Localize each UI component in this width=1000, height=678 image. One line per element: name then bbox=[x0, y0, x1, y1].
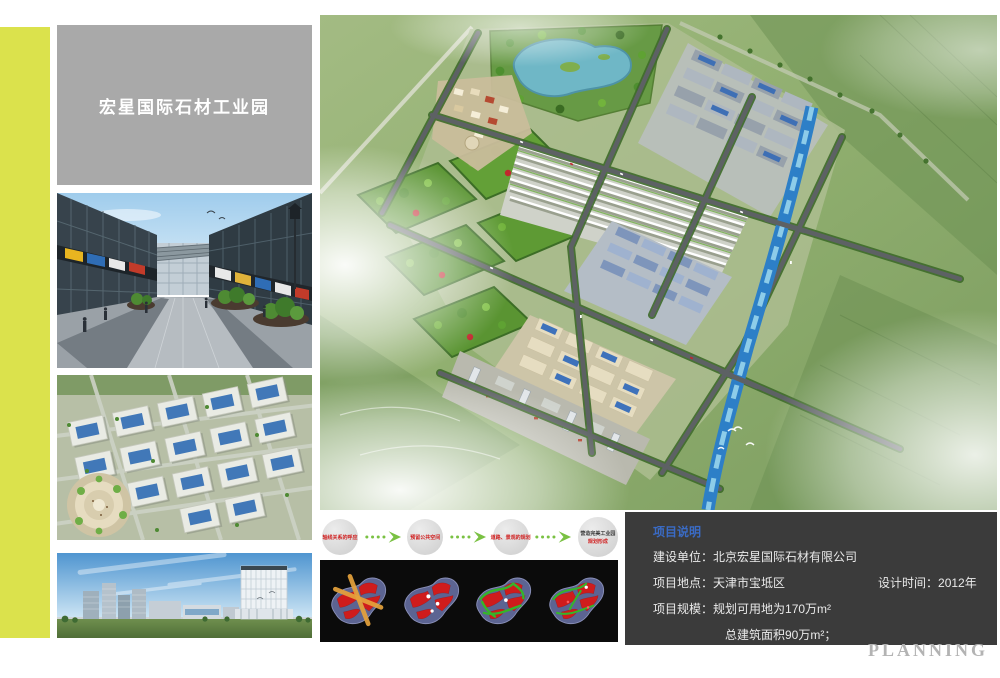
info-label: 设计时间： bbox=[878, 576, 938, 590]
info-label: 项目规模： bbox=[653, 602, 713, 616]
info-row-floor-area: 总建筑面积90万m²； bbox=[725, 626, 836, 643]
process-step-1: 轴线关系的呼应 bbox=[322, 519, 358, 555]
design-process-flow: 轴线关系的呼应 预留公共空间 道路、景观的规划 营造完美工业园 规划形成 bbox=[322, 516, 618, 558]
arrow-right-icon bbox=[534, 530, 572, 544]
project-info-panel: 项目说明 建设单位：北京宏星国际石材有限公司 项目地点：天津市宝坻区 设计时间：… bbox=[625, 512, 997, 645]
arrow-right-icon bbox=[364, 530, 402, 544]
industrial-park-aerial-rendering bbox=[57, 375, 312, 540]
process-step-sublabel: 规划形成 bbox=[588, 538, 608, 545]
process-step-label: 预留公共空间 bbox=[410, 534, 440, 541]
accent-stripe bbox=[0, 27, 50, 638]
info-row-scale: 项目规模：规划可用地为170万m² bbox=[653, 600, 831, 617]
concept-diagram-panel bbox=[320, 560, 618, 642]
info-value: 总建筑面积90万m²； bbox=[725, 628, 836, 642]
process-step-4: 营造完美工业园 规划形成 bbox=[578, 517, 618, 557]
process-step-label: 营造完美工业园 bbox=[580, 530, 615, 537]
presentation-board: 宏星国际石材工业园 bbox=[0, 0, 1000, 678]
info-heading: 项目说明 bbox=[653, 523, 701, 540]
info-value: 北京宏星国际石材有限公司 bbox=[713, 550, 857, 564]
page-title: 宏星国际石材工业园 bbox=[99, 93, 270, 118]
process-step-2: 预留公共空间 bbox=[407, 519, 443, 555]
planning-watermark: PLANNING bbox=[868, 640, 988, 661]
info-value: 2012年 bbox=[938, 576, 977, 590]
project-title-panel: 宏星国际石材工业园 bbox=[57, 25, 312, 185]
process-step-label: 道路、景观的规划 bbox=[491, 534, 531, 541]
info-design-time: 设计时间：2012年 bbox=[878, 574, 977, 591]
info-label: 建设单位： bbox=[653, 550, 713, 564]
info-value: 规划可用地为170万m² bbox=[713, 602, 831, 616]
site-concept-diagram-nodes bbox=[401, 567, 465, 635]
info-row-builder: 建设单位：北京宏星国际石材有限公司 bbox=[653, 548, 857, 565]
arrow-right-icon bbox=[449, 530, 487, 544]
info-value: 天津市宝坻区 bbox=[713, 576, 785, 590]
site-concept-diagram-axes bbox=[328, 567, 392, 635]
street-view-rendering bbox=[57, 193, 312, 368]
masterplan-aerial-rendering bbox=[320, 15, 997, 510]
process-step-label: 轴线关系的呼应 bbox=[322, 534, 357, 541]
process-step-3: 道路、景观的规划 bbox=[493, 519, 529, 555]
info-label: 项目地点： bbox=[653, 576, 713, 590]
site-concept-diagram-roads bbox=[473, 567, 537, 635]
info-row-location: 项目地点：天津市宝坻区 设计时间：2012年 bbox=[653, 574, 785, 591]
site-concept-diagram-final bbox=[546, 567, 610, 635]
skyline-rendering bbox=[57, 553, 312, 638]
